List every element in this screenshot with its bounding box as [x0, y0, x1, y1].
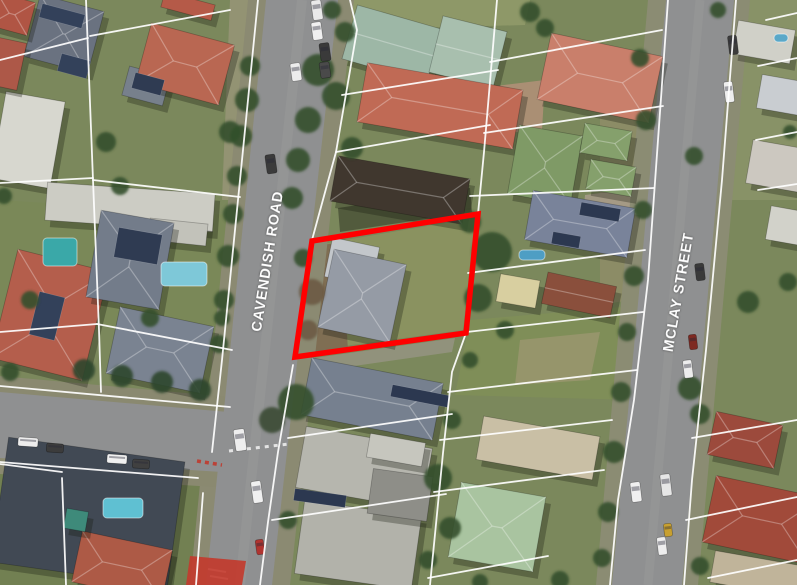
building [765, 206, 797, 246]
tree-canopy [1, 363, 19, 381]
car [682, 360, 693, 379]
car [311, 21, 323, 40]
building-roof [756, 74, 797, 115]
tree-canopy [295, 107, 321, 133]
car [694, 263, 705, 281]
tree-canopy [536, 19, 554, 37]
tree-canopy [779, 273, 797, 291]
tree-canopy [323, 1, 341, 19]
tree-canopy [634, 201, 652, 219]
car-body [319, 42, 331, 61]
car [630, 481, 642, 502]
tree-canopy [111, 365, 133, 387]
tree-canopy [21, 291, 39, 309]
car [132, 459, 150, 469]
building [367, 469, 433, 522]
car-body [311, 21, 323, 40]
car [265, 154, 278, 174]
swimming-pool [43, 238, 77, 266]
swimming-pool [774, 34, 788, 42]
tree-canopy [111, 177, 129, 195]
building [63, 508, 88, 532]
swimming-pool [161, 262, 207, 286]
tree-canopy [678, 376, 702, 400]
tree-canopy [286, 148, 310, 172]
tree-canopy [223, 204, 243, 224]
tree-canopy [214, 290, 234, 310]
tree-canopy [424, 464, 452, 492]
tree-canopy [685, 147, 703, 165]
building [317, 249, 406, 343]
aerial-map: CAVENDISH ROAD MCLAY STREET [0, 0, 797, 585]
car [656, 537, 667, 556]
tree-canopy [496, 321, 514, 339]
car-windshield [661, 478, 670, 484]
car-body [18, 437, 39, 447]
tree-canopy [439, 517, 461, 539]
tree-canopy [737, 291, 759, 313]
tree-canopy [419, 551, 437, 569]
tree-canopy [210, 335, 228, 353]
car-body [107, 454, 128, 464]
tree-canopy [189, 379, 211, 401]
tree-canopy [611, 382, 631, 402]
car-body [656, 537, 667, 556]
tree-canopy [96, 132, 116, 152]
tree-canopy [624, 266, 644, 286]
car-body [630, 481, 642, 502]
tree-canopy [710, 2, 726, 18]
tree-canopy [603, 441, 625, 463]
tree-canopy [141, 309, 159, 327]
building-roof [63, 508, 88, 532]
bus-zone-marking [186, 556, 246, 585]
swimming-pool [519, 250, 545, 260]
tree-canopy [219, 121, 241, 143]
tree-canopy [631, 49, 649, 67]
building-roof [765, 206, 797, 246]
roof-ridge-line [63, 34, 65, 35]
car-body [694, 263, 705, 281]
car [319, 61, 331, 78]
building [756, 74, 797, 115]
swimming-pool [103, 498, 143, 518]
tree-canopy [217, 245, 239, 267]
tree-canopy [227, 166, 247, 186]
tree-canopy [636, 110, 656, 130]
building-roof [367, 469, 433, 522]
car [688, 334, 698, 350]
tree-canopy [73, 359, 95, 381]
aerial-map-screenshot: CAVENDISH ROAD MCLAY STREET [0, 0, 797, 585]
car [18, 437, 39, 447]
car [663, 523, 673, 537]
terrain-patch [515, 332, 600, 385]
car [46, 443, 64, 453]
tree-canopy [151, 371, 173, 393]
tree-canopy [691, 557, 709, 575]
car-body [682, 360, 693, 379]
car-body [663, 523, 673, 537]
car-body [319, 61, 331, 78]
car-body [265, 154, 278, 174]
car-body [46, 443, 64, 453]
tree-canopy [279, 511, 297, 529]
car-body [290, 62, 302, 81]
tree-canopy [462, 352, 478, 368]
car-body [688, 334, 698, 350]
car-body [132, 459, 150, 469]
tree-canopy [618, 323, 636, 341]
tree-canopy [598, 502, 618, 522]
car [319, 42, 331, 61]
car [107, 454, 128, 464]
tree-canopy [335, 22, 355, 42]
car [290, 62, 302, 81]
tree-canopy [520, 2, 540, 22]
tree-canopy [593, 549, 611, 567]
